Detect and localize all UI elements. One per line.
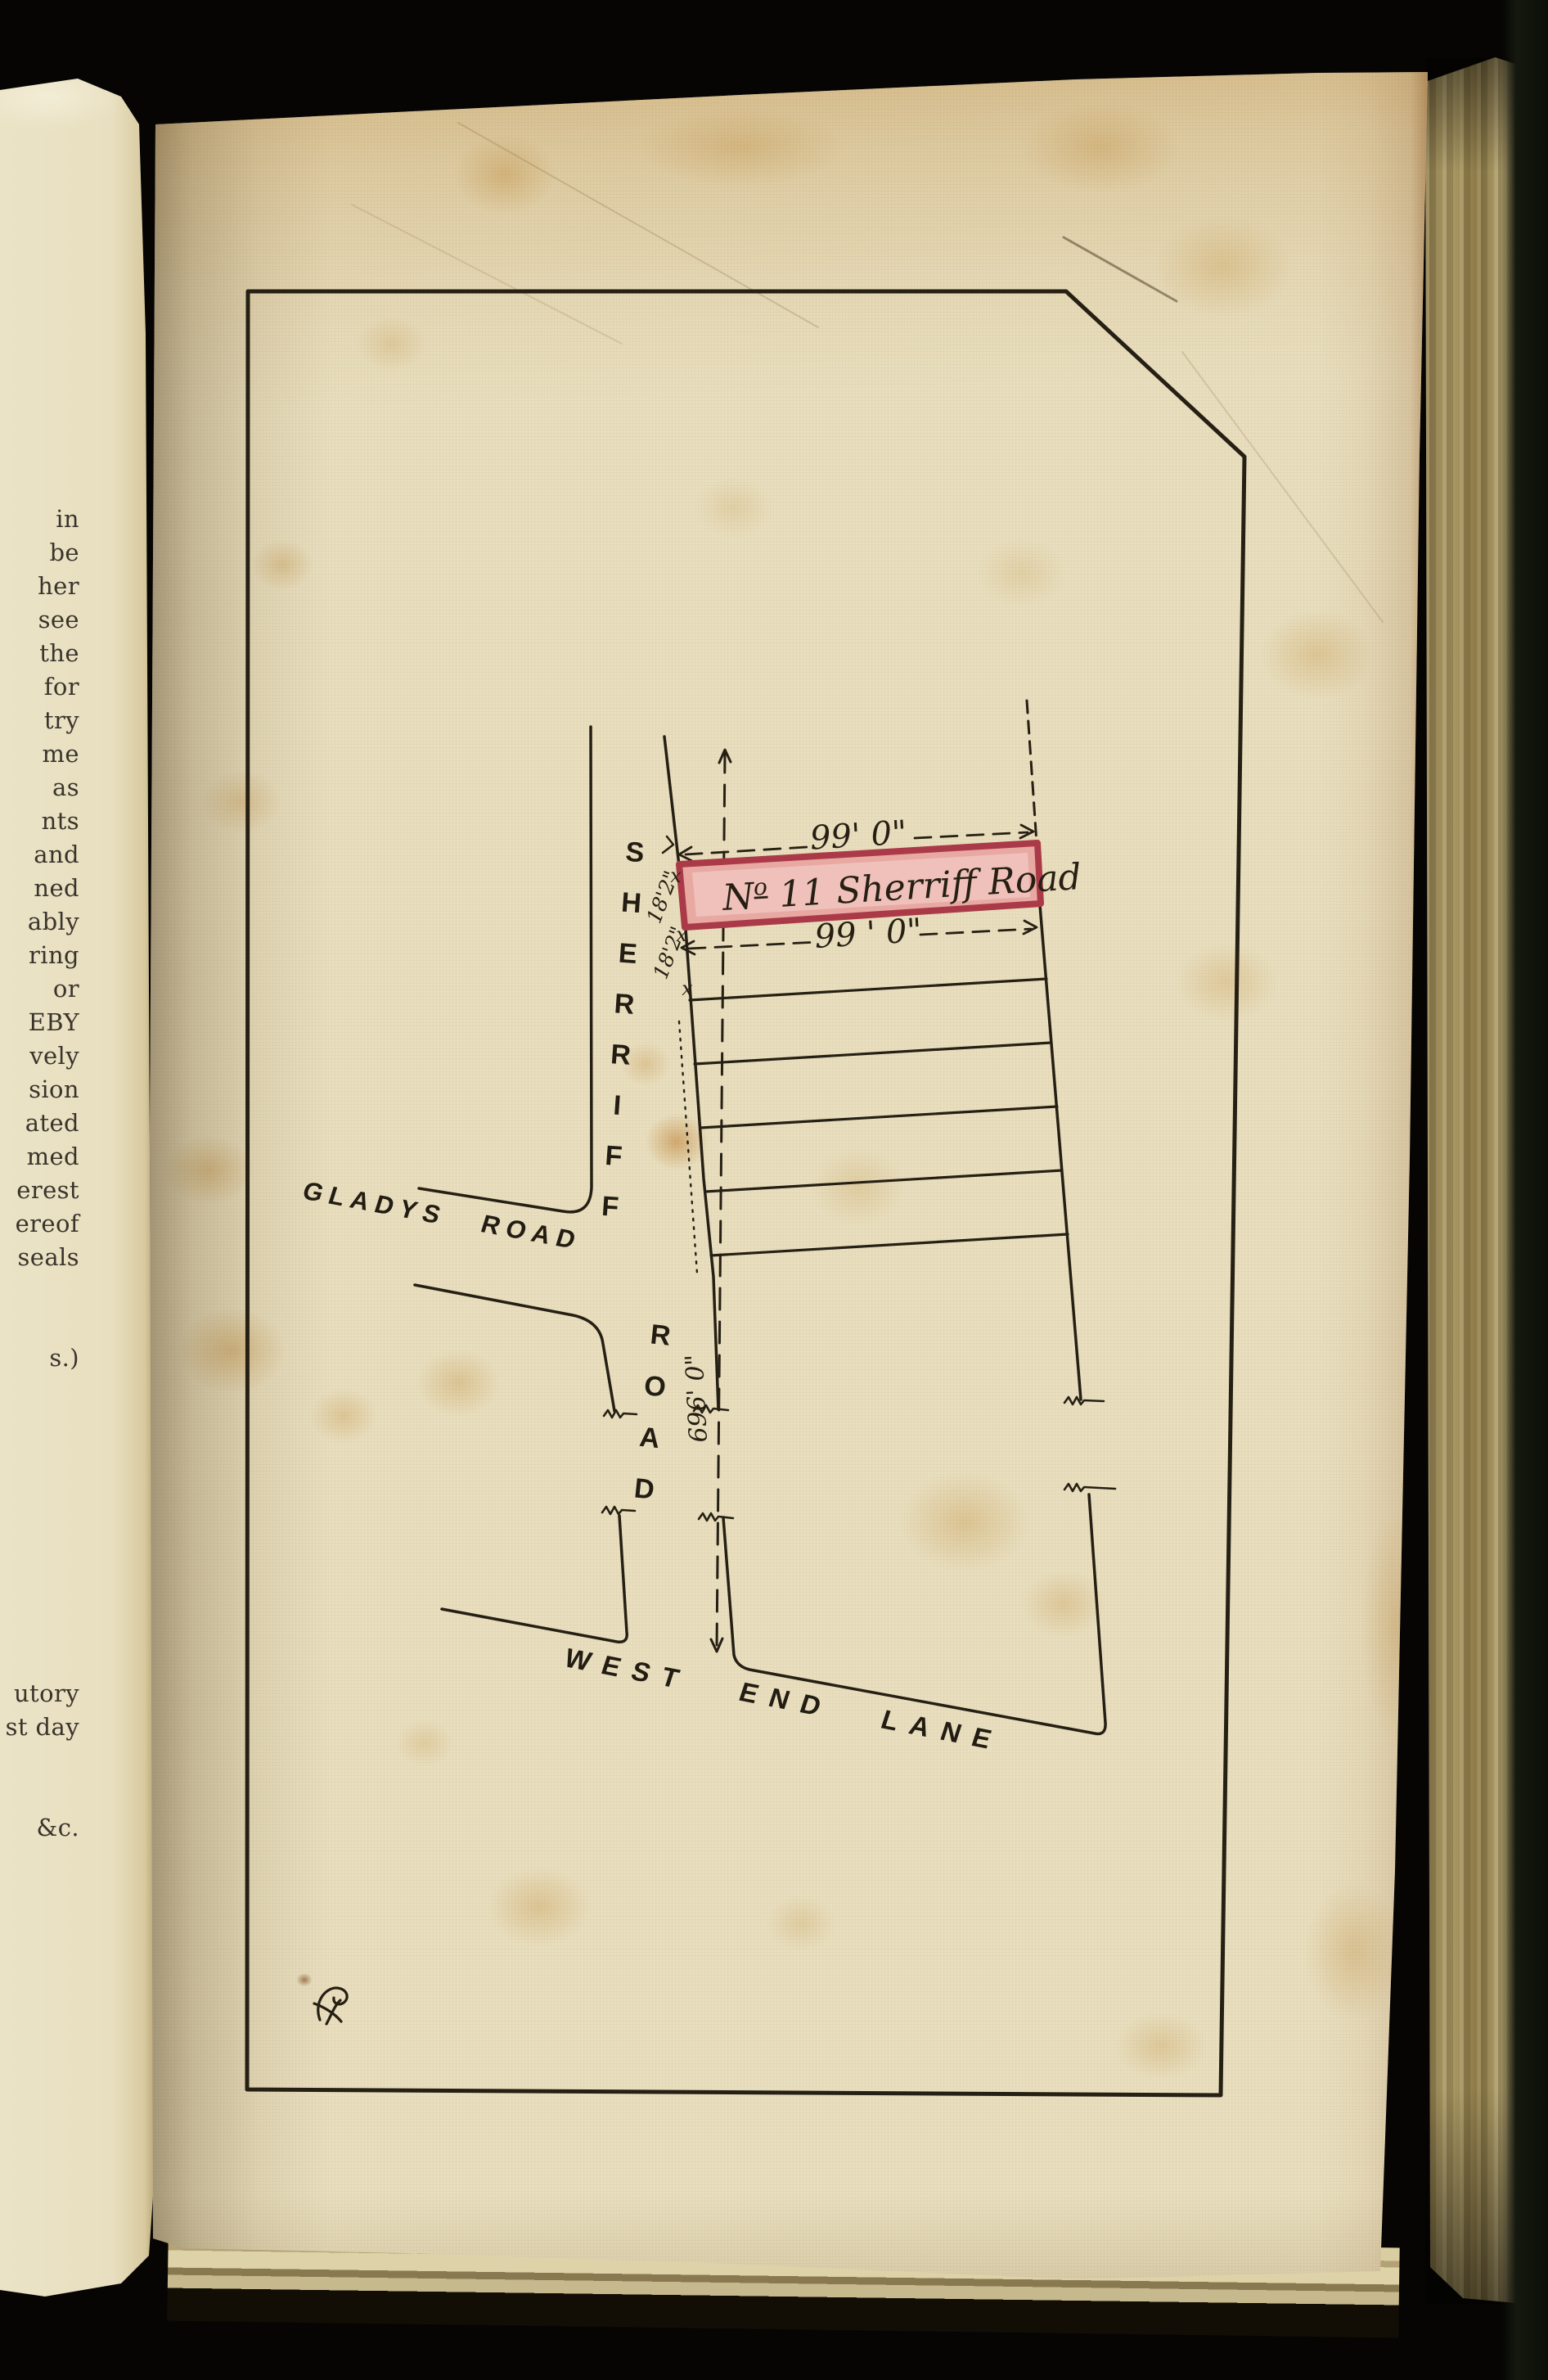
- crease-line: [1182, 352, 1383, 622]
- break-mark: [604, 1410, 637, 1418]
- plot-division-line: [690, 979, 1046, 1000]
- scanned-book-page: in be her see the for try me as nts and …: [0, 0, 1548, 2380]
- rear-boundary-dashed-extension: [1027, 701, 1037, 843]
- plot-frontage-line: [664, 737, 718, 1409]
- crease-line: [458, 123, 818, 327]
- dimension-line: [689, 942, 818, 949]
- crease-line: [1064, 237, 1177, 301]
- plot-division-line: [705, 1170, 1062, 1192]
- break-mark: [1064, 1484, 1115, 1491]
- plot-division-line: [695, 1043, 1051, 1064]
- frontage-tick-x: x: [676, 923, 687, 946]
- frontage-tick-x: x: [670, 864, 682, 887]
- frontage-tick-x: x: [682, 977, 693, 1000]
- dimension-line: [915, 832, 1028, 838]
- break-mark: [1064, 1397, 1104, 1404]
- dimension-bottom-99: 99 ' 0": [813, 912, 923, 956]
- sherriff-road-left-boundary: [419, 727, 592, 1212]
- dimension-line: [920, 929, 1031, 935]
- dimension-line: [686, 847, 807, 854]
- arrowhead-right-icon: [1024, 921, 1037, 934]
- surveyor-monogram: [314, 1988, 347, 2024]
- plot-division-line: [700, 1107, 1057, 1128]
- tick-chevron-icon: [663, 836, 673, 853]
- dimension-total-frontage-696: 696' 0": [680, 1354, 713, 1444]
- crease-line: [352, 205, 622, 344]
- west-end-lane-west-boundary: [442, 1516, 627, 1642]
- gladys-road-bottom-boundary: [415, 1285, 614, 1411]
- survey-plan: No11 Sherriff Road 99' 0" 99 ' 0" 696' 0…: [0, 0, 1548, 2380]
- dimension-top-99: 99' 0": [809, 814, 908, 857]
- plot-division-line: [711, 1234, 1068, 1255]
- break-mark: [699, 1513, 733, 1521]
